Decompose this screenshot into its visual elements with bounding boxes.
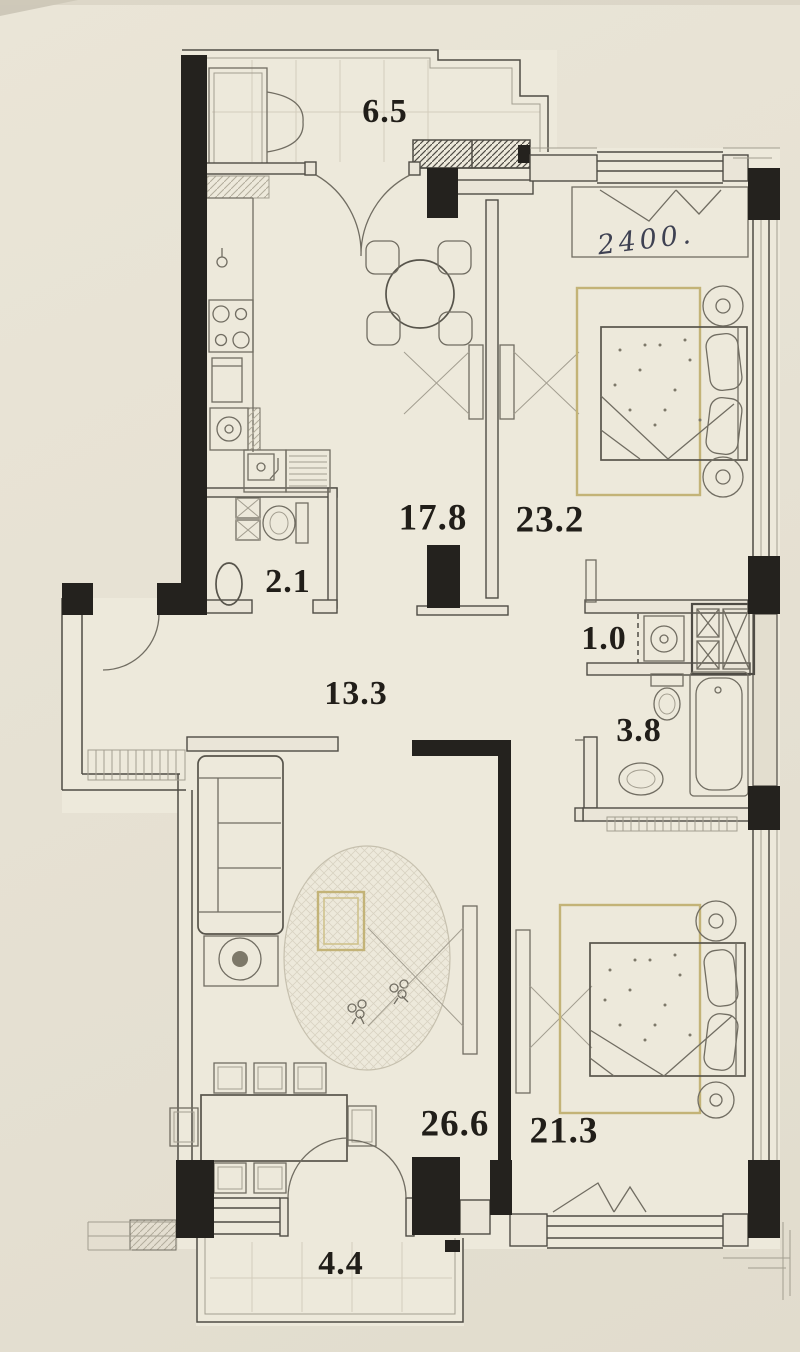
room-area-laundry: 1.0 [581,622,627,656]
floor-plan-drawing [0,0,800,1352]
room-area-wc: 2.1 [265,565,311,599]
room-area-balcony: 4.4 [318,1247,364,1281]
room-area-loggia: 6.5 [362,95,408,129]
room-area-bathroom: 3.8 [616,714,662,748]
living-carpet [284,846,450,1070]
room-area-living: 26.6 [421,1106,490,1143]
floor-plan-page: 6.5 17.8 23.2 2.1 13.3 1.0 3.8 26.6 21.3… [0,0,800,1352]
scan-edge [0,0,800,5]
room-area-bedroom2: 21.3 [530,1113,599,1150]
room-area-bedroom1: 23.2 [516,502,585,539]
room-area-hallway: 13.3 [324,677,388,711]
room-area-kitchen: 17.8 [399,500,468,537]
